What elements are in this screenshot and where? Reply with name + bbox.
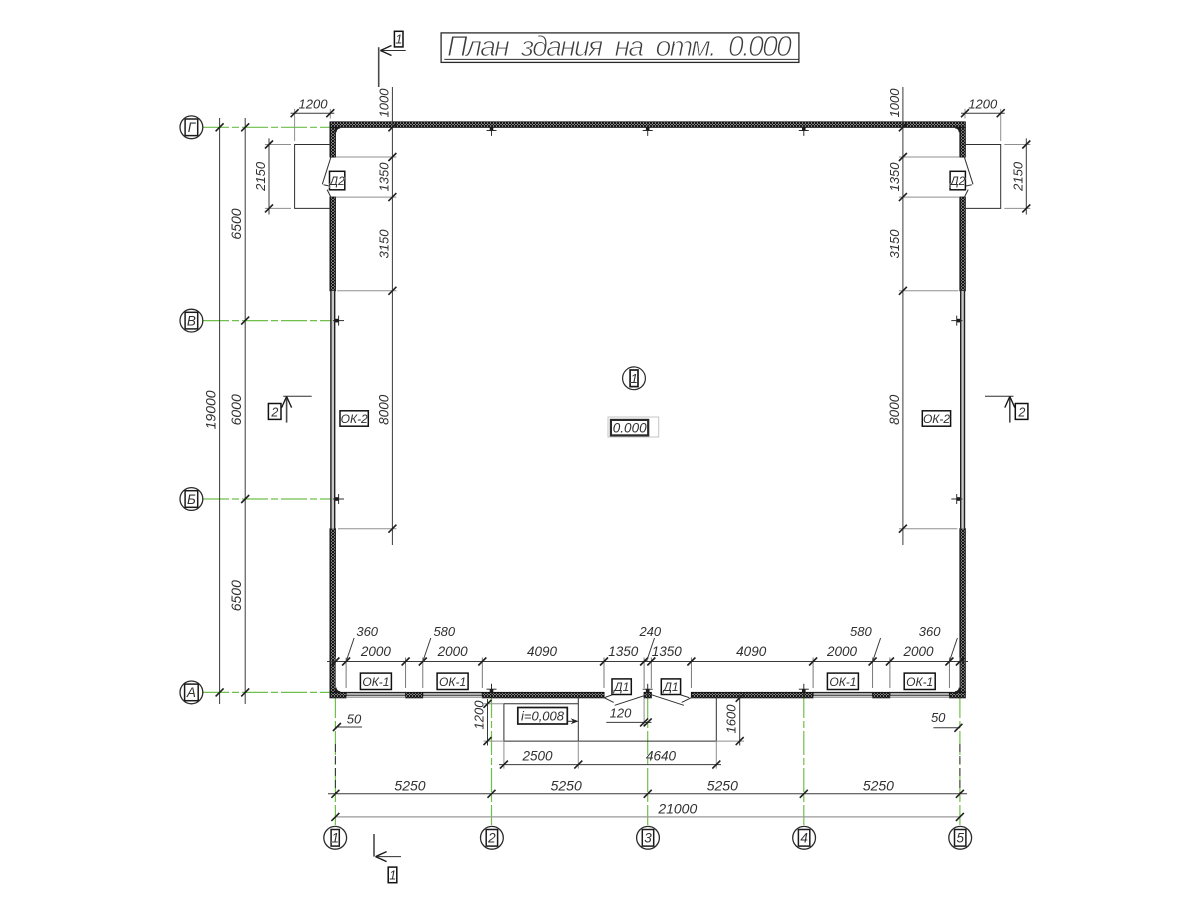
- svg-text:Д2: Д2: [948, 174, 965, 188]
- svg-text:580: 580: [433, 624, 455, 639]
- svg-text:50: 50: [931, 710, 946, 725]
- svg-text:Д1: Д1: [612, 680, 629, 694]
- svg-text:1350: 1350: [376, 162, 391, 192]
- svg-text:360: 360: [919, 624, 941, 639]
- svg-text:1600: 1600: [724, 704, 739, 734]
- svg-text:5250: 5250: [551, 777, 582, 793]
- svg-text:6500: 6500: [228, 580, 244, 611]
- svg-text:1200: 1200: [968, 97, 998, 112]
- svg-text:1000: 1000: [887, 88, 902, 118]
- svg-text:1000: 1000: [376, 88, 391, 118]
- svg-text:i=0,008: i=0,008: [521, 709, 565, 724]
- svg-text:А: А: [186, 685, 196, 700]
- svg-text:2000: 2000: [902, 644, 934, 659]
- svg-text:5250: 5250: [394, 777, 425, 793]
- svg-text:120: 120: [610, 706, 632, 721]
- svg-text:19000: 19000: [203, 390, 219, 429]
- svg-text:360: 360: [356, 624, 378, 639]
- svg-text:6000: 6000: [228, 394, 244, 425]
- svg-text:3150: 3150: [376, 229, 391, 259]
- svg-text:1200: 1200: [299, 97, 329, 112]
- svg-text:ОК-2: ОК-2: [923, 412, 950, 426]
- svg-text:ОК-1: ОК-1: [362, 675, 389, 689]
- svg-text:1350: 1350: [887, 162, 902, 192]
- svg-text:1350: 1350: [608, 644, 639, 659]
- svg-text:2000: 2000: [437, 644, 469, 659]
- svg-text:2150: 2150: [253, 161, 268, 192]
- svg-text:21000: 21000: [657, 800, 697, 816]
- svg-text:Д2: Д2: [328, 174, 345, 188]
- svg-text:2150: 2150: [1010, 161, 1025, 192]
- svg-text:4090: 4090: [736, 644, 767, 659]
- svg-text:4640: 4640: [646, 748, 677, 763]
- svg-text:1350: 1350: [652, 644, 683, 659]
- svg-text:В: В: [187, 313, 196, 328]
- svg-text:ОК-2: ОК-2: [341, 412, 368, 426]
- svg-text:1200: 1200: [472, 700, 487, 730]
- svg-text:2000: 2000: [360, 644, 392, 659]
- svg-text:2000: 2000: [826, 644, 858, 659]
- svg-text:1: 1: [631, 371, 638, 386]
- svg-text:580: 580: [850, 624, 872, 639]
- svg-text:50: 50: [347, 712, 362, 727]
- svg-text:3: 3: [644, 831, 652, 846]
- svg-text:1: 1: [389, 869, 396, 883]
- svg-text:1: 1: [331, 831, 339, 846]
- svg-text:5: 5: [956, 831, 964, 846]
- svg-text:План здания на отм. 0.000: План здания на отм. 0.000: [447, 31, 792, 63]
- svg-text:2: 2: [1017, 405, 1025, 419]
- svg-text:Д1: Д1: [661, 680, 678, 694]
- svg-text:3150: 3150: [887, 229, 902, 259]
- svg-text:1: 1: [395, 33, 402, 47]
- svg-text:4: 4: [800, 831, 808, 846]
- svg-text:5250: 5250: [707, 777, 738, 793]
- svg-text:2: 2: [270, 405, 278, 419]
- svg-text:6500: 6500: [228, 208, 244, 239]
- svg-text:5250: 5250: [863, 777, 894, 793]
- svg-text:ОК-1: ОК-1: [439, 675, 466, 689]
- svg-text:0.000: 0.000: [613, 420, 647, 435]
- svg-text:2500: 2500: [521, 748, 553, 763]
- svg-text:ОК-1: ОК-1: [906, 675, 933, 689]
- svg-text:ОК-1: ОК-1: [829, 675, 856, 689]
- svg-text:Б: Б: [187, 492, 196, 507]
- svg-text:8000: 8000: [376, 394, 391, 425]
- svg-text:2: 2: [487, 831, 496, 846]
- svg-text:8000: 8000: [887, 394, 902, 425]
- svg-text:4090: 4090: [527, 644, 558, 659]
- svg-text:240: 240: [638, 624, 661, 639]
